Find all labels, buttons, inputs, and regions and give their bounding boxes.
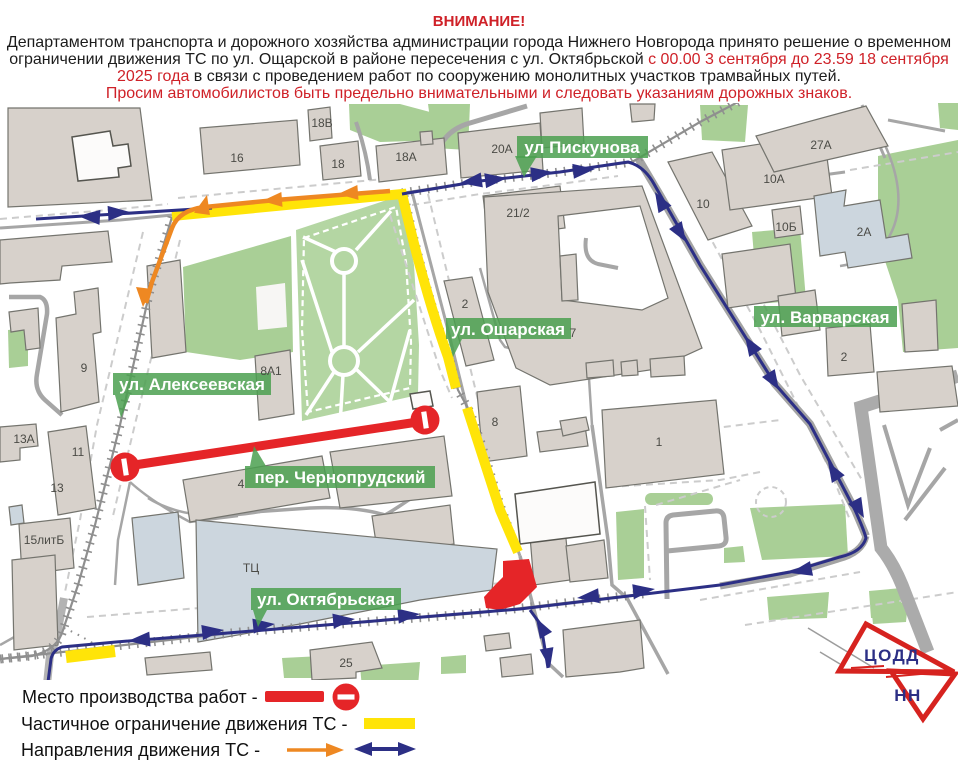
svg-text:10: 10	[696, 197, 710, 211]
svg-text:Направления движения ТС -: Направления движения ТС -	[21, 740, 260, 760]
svg-text:18В: 18В	[311, 116, 332, 130]
svg-text:18: 18	[331, 157, 345, 171]
svg-text:18А: 18А	[395, 150, 416, 164]
svg-text:4: 4	[238, 477, 245, 491]
svg-text:ул. Октябрьская: ул. Октябрьская	[257, 590, 395, 609]
svg-text:Частичное ограничение движения: Частичное ограничение движения ТС -	[21, 714, 348, 734]
svg-text:ул. Ошарская: ул. Ошарская	[451, 320, 565, 339]
svg-text:8А1: 8А1	[260, 364, 282, 378]
svg-text:НН: НН	[894, 686, 922, 705]
svg-text:ул Пискунова: ул Пискунова	[524, 138, 640, 157]
svg-text:27А: 27А	[810, 138, 831, 152]
svg-text:11: 11	[72, 445, 85, 459]
svg-text:13: 13	[50, 481, 64, 495]
svg-text:16: 16	[230, 151, 244, 165]
svg-text:ЦОДД: ЦОДД	[864, 646, 920, 665]
svg-text:7: 7	[570, 326, 577, 340]
svg-text:2: 2	[462, 297, 469, 311]
svg-text:8: 8	[492, 415, 499, 429]
svg-text:13А: 13А	[13, 432, 34, 446]
svg-text:ТЦ: ТЦ	[243, 561, 259, 575]
svg-text:21/2: 21/2	[506, 206, 530, 220]
svg-text:2: 2	[841, 350, 848, 364]
svg-text:2А: 2А	[857, 225, 872, 239]
svg-text:10Б: 10Б	[775, 220, 796, 234]
svg-text:Место производства работ -: Место производства работ -	[22, 687, 258, 707]
svg-text:9: 9	[81, 361, 88, 375]
svg-text:15литБ: 15литБ	[24, 533, 65, 547]
svg-text:пер. Чернопрудский: пер. Чернопрудский	[255, 468, 426, 487]
svg-text:ул. Алексеевская: ул. Алексеевская	[119, 375, 265, 394]
svg-text:ул. Варварская: ул. Варварская	[761, 308, 890, 327]
svg-text:10А: 10А	[763, 172, 784, 186]
svg-text:20А: 20А	[491, 142, 512, 156]
svg-text:1: 1	[656, 435, 663, 449]
svg-text:25: 25	[339, 656, 353, 670]
